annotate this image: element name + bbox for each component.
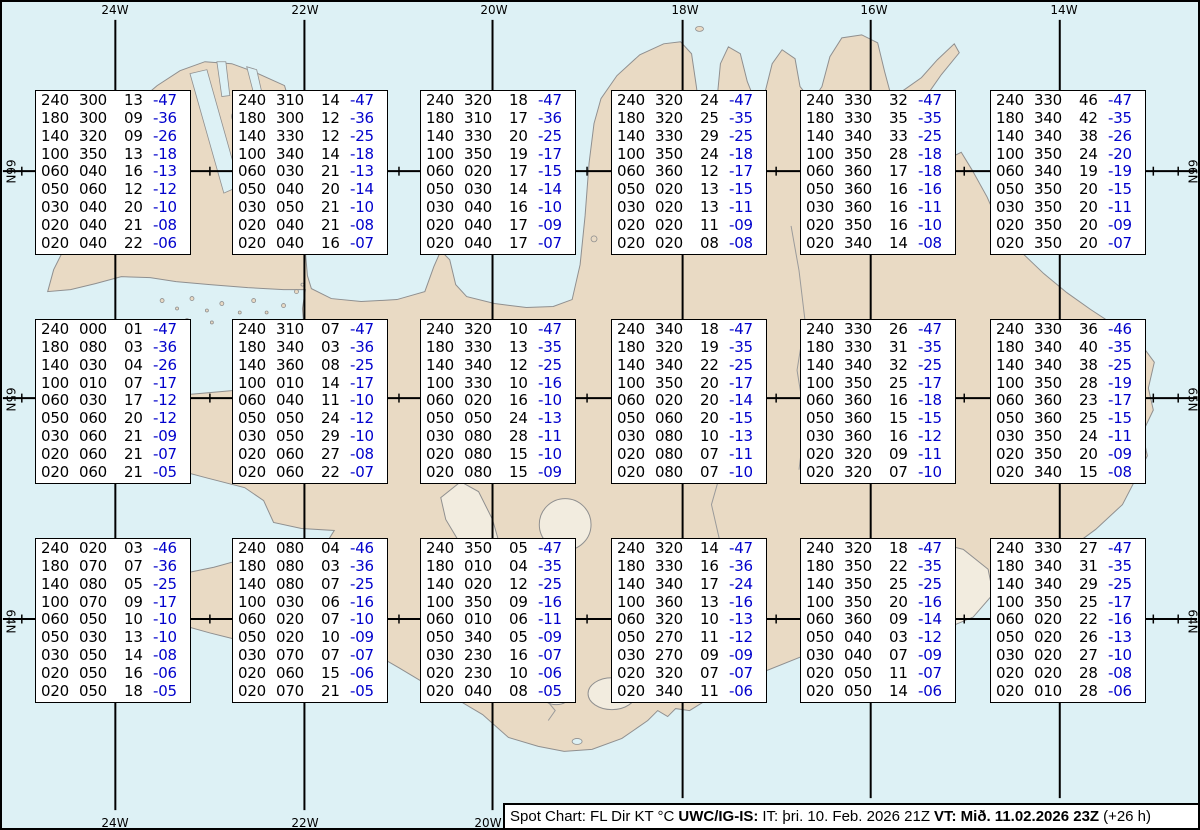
wind-speed-cell: 20 xyxy=(889,594,918,612)
spot-row: 06036009-14 xyxy=(806,611,955,629)
wind-dir-cell: 300 xyxy=(79,110,124,128)
flight-level-cell: 180 xyxy=(996,558,1034,576)
flight-level-cell: 140 xyxy=(41,357,79,375)
flight-level-cell: 140 xyxy=(617,576,655,594)
temperature-cell: -10 xyxy=(918,217,954,235)
wind-dir-cell: 040 xyxy=(276,217,321,235)
wind-dir-cell: 350 xyxy=(1034,375,1079,393)
wind-dir-cell: 330 xyxy=(844,321,889,339)
flight-level-cell: 140 xyxy=(41,576,79,594)
wind-dir-cell: 050 xyxy=(844,665,889,683)
flight-level-cell: 020 xyxy=(806,446,844,464)
flight-level-cell: 050 xyxy=(238,181,276,199)
wind-speed-cell: 10 xyxy=(509,321,538,339)
flight-level-cell: 020 xyxy=(806,217,844,235)
temperature-cell: -05 xyxy=(538,683,574,701)
wind-speed-cell: 24 xyxy=(321,410,350,428)
temperature-cell: -26 xyxy=(153,357,189,375)
spot-row: 05034005-09 xyxy=(426,629,575,647)
flight-level-cell: 100 xyxy=(806,594,844,612)
wind-speed-cell: 36 xyxy=(1079,321,1108,339)
spot-row: 05002010-09 xyxy=(238,629,387,647)
wind-dir-cell: 300 xyxy=(276,110,321,128)
temperature-cell: -10 xyxy=(350,199,386,217)
flight-level-cell: 140 xyxy=(238,357,276,375)
wind-dir-cell: 010 xyxy=(276,375,321,393)
temperature-cell: -18 xyxy=(918,146,954,164)
wind-speed-cell: 10 xyxy=(124,611,153,629)
temperature-cell: -18 xyxy=(350,146,386,164)
wind-speed-cell: 08 xyxy=(509,683,538,701)
wind-dir-cell: 050 xyxy=(276,428,321,446)
spot-data-box: 24035005-4718001004-3514002012-251003500… xyxy=(420,538,576,703)
wind-speed-cell: 10 xyxy=(509,665,538,683)
footer-valid-time: VT: Mið. 11.02.2026 23Z xyxy=(934,808,1099,825)
wind-dir-cell: 340 xyxy=(1034,357,1079,375)
temperature-cell: -09 xyxy=(918,647,954,665)
temperature-cell: -16 xyxy=(538,375,574,393)
flight-level-cell: 020 xyxy=(996,235,1034,253)
flight-level-cell: 020 xyxy=(41,683,79,701)
spot-row: 02006022-07 xyxy=(238,464,387,482)
temperature-cell: -07 xyxy=(350,235,386,253)
wind-dir-cell: 360 xyxy=(655,163,700,181)
temperature-cell: -25 xyxy=(729,128,765,146)
flight-level-cell: 180 xyxy=(806,558,844,576)
wind-dir-cell: 060 xyxy=(276,464,321,482)
wind-speed-cell: 10 xyxy=(509,375,538,393)
temperature-cell: -25 xyxy=(538,576,574,594)
flight-level-cell: 050 xyxy=(238,410,276,428)
spot-row: 03005029-10 xyxy=(238,428,387,446)
flight-level-cell: 050 xyxy=(996,410,1034,428)
temperature-cell: -35 xyxy=(918,558,954,576)
flight-level-cell: 020 xyxy=(996,683,1034,701)
wind-dir-cell: 060 xyxy=(276,446,321,464)
spot-row: 14035025-25 xyxy=(806,576,955,594)
spot-row: 14002012-25 xyxy=(426,576,575,594)
wind-dir-cell: 040 xyxy=(844,647,889,665)
temperature-cell: -36 xyxy=(350,558,386,576)
wind-dir-cell: 050 xyxy=(464,410,509,428)
wind-dir-cell: 320 xyxy=(464,92,509,110)
wind-speed-cell: 21 xyxy=(321,683,350,701)
wind-speed-cell: 04 xyxy=(509,558,538,576)
footer-lead-time: (+26 h) xyxy=(1103,808,1151,825)
temperature-cell: -36 xyxy=(153,558,189,576)
flight-level-cell: 020 xyxy=(617,464,655,482)
spot-row: 18008003-36 xyxy=(41,339,190,357)
flight-level-cell: 240 xyxy=(41,540,79,558)
wind-dir-cell: 050 xyxy=(79,683,124,701)
wind-dir-cell: 360 xyxy=(1034,392,1079,410)
spot-row: 03036016-11 xyxy=(806,199,955,217)
spot-row: 24002003-46 xyxy=(41,540,190,558)
wind-dir-cell: 330 xyxy=(1034,321,1079,339)
temperature-cell: -25 xyxy=(918,576,954,594)
spot-row: 18034042-35 xyxy=(996,110,1145,128)
wind-speed-cell: 03 xyxy=(124,339,153,357)
spot-row: 06002020-14 xyxy=(617,392,766,410)
spot-row: 24032024-47 xyxy=(617,92,766,110)
wind-speed-cell: 13 xyxy=(700,181,729,199)
wind-dir-cell: 350 xyxy=(844,146,889,164)
wind-dir-cell: 060 xyxy=(79,410,124,428)
spot-row: 14034029-25 xyxy=(996,576,1145,594)
spot-row: 02032007-10 xyxy=(806,464,955,482)
temperature-cell: -09 xyxy=(153,428,189,446)
wind-speed-cell: 21 xyxy=(124,428,153,446)
spot-row: 10035020-16 xyxy=(806,594,955,612)
wind-dir-cell: 310 xyxy=(276,321,321,339)
temperature-cell: -26 xyxy=(153,128,189,146)
spot-row: 02006027-08 xyxy=(238,446,387,464)
flight-level-cell: 240 xyxy=(996,540,1034,558)
spot-row: 14033029-25 xyxy=(617,128,766,146)
flight-level-cell: 020 xyxy=(806,235,844,253)
flight-level-cell: 100 xyxy=(617,375,655,393)
flight-level-cell: 020 xyxy=(41,446,79,464)
flight-level-cell: 100 xyxy=(996,375,1034,393)
meridian-label-top: 14W xyxy=(1049,4,1079,17)
spot-row: 18033031-35 xyxy=(806,339,955,357)
spot-row: 03004007-09 xyxy=(806,647,955,665)
temperature-cell: -46 xyxy=(350,540,386,558)
flight-level-cell: 100 xyxy=(41,594,79,612)
wind-dir-cell: 330 xyxy=(464,375,509,393)
wind-dir-cell: 080 xyxy=(276,576,321,594)
wind-dir-cell: 330 xyxy=(464,128,509,146)
wind-speed-cell: 04 xyxy=(321,540,350,558)
wind-dir-cell: 340 xyxy=(1034,163,1079,181)
spot-row: 02034014-08 xyxy=(806,235,955,253)
spot-row: 02004022-06 xyxy=(41,235,190,253)
spot-row: 02007021-05 xyxy=(238,683,387,701)
flight-level-cell: 240 xyxy=(996,321,1034,339)
temperature-cell: -17 xyxy=(918,375,954,393)
spot-row: 06036016-18 xyxy=(806,392,955,410)
spot-row: 10035024-18 xyxy=(617,146,766,164)
wind-dir-cell: 320 xyxy=(464,321,509,339)
spot-row: 18030009-36 xyxy=(41,110,190,128)
flight-level-cell: 020 xyxy=(617,217,655,235)
flight-level-cell: 140 xyxy=(996,128,1034,146)
spot-row: 02008015-10 xyxy=(426,446,575,464)
spot-row: 10001014-17 xyxy=(238,375,387,393)
temperature-cell: -11 xyxy=(918,199,954,217)
wind-speed-cell: 08 xyxy=(321,357,350,375)
flight-level-cell: 180 xyxy=(426,339,464,357)
flight-level-cell: 060 xyxy=(617,611,655,629)
spot-row: 24008004-46 xyxy=(238,540,387,558)
spot-row: 10035020-17 xyxy=(617,375,766,393)
wind-dir-cell: 330 xyxy=(655,128,700,146)
wind-speed-cell: 17 xyxy=(509,217,538,235)
wind-dir-cell: 020 xyxy=(1034,647,1079,665)
temperature-cell: -05 xyxy=(153,464,189,482)
wind-speed-cell: 17 xyxy=(889,163,918,181)
spot-row: 24032014-47 xyxy=(617,540,766,558)
wind-speed-cell: 06 xyxy=(321,594,350,612)
flight-level-cell: 100 xyxy=(617,594,655,612)
flight-level-cell: 100 xyxy=(238,146,276,164)
temperature-cell: -10 xyxy=(538,199,574,217)
flight-level-cell: 100 xyxy=(426,375,464,393)
wind-speed-cell: 04 xyxy=(124,357,153,375)
wind-dir-cell: 030 xyxy=(79,392,124,410)
wind-dir-cell: 360 xyxy=(844,410,889,428)
spot-row: 14034032-25 xyxy=(806,357,955,375)
spot-row: 02032009-11 xyxy=(806,446,955,464)
temperature-cell: -16 xyxy=(1108,611,1144,629)
wind-speed-cell: 16 xyxy=(889,199,918,217)
parallel-label-left: 66N xyxy=(4,157,17,187)
wind-speed-cell: 12 xyxy=(321,110,350,128)
spot-data-box: 24031007-4718034003-3614036008-251000101… xyxy=(232,319,388,484)
wind-speed-cell: 27 xyxy=(321,446,350,464)
flight-level-cell: 060 xyxy=(426,163,464,181)
meridian-label-top: 16W xyxy=(859,4,889,17)
flight-level-cell: 100 xyxy=(426,594,464,612)
wind-speed-cell: 21 xyxy=(124,446,153,464)
flight-level-cell: 240 xyxy=(41,92,79,110)
wind-speed-cell: 09 xyxy=(124,110,153,128)
wind-speed-cell: 17 xyxy=(509,110,538,128)
wind-speed-cell: 07 xyxy=(321,611,350,629)
flight-level-cell: 020 xyxy=(617,446,655,464)
wind-dir-cell: 360 xyxy=(844,199,889,217)
temperature-cell: -10 xyxy=(729,464,765,482)
wind-speed-cell: 35 xyxy=(889,110,918,128)
wind-speed-cell: 28 xyxy=(1079,683,1108,701)
flight-level-cell: 240 xyxy=(806,540,844,558)
wind-dir-cell: 080 xyxy=(79,576,124,594)
spot-data-box: 24008004-4618008003-3614008007-251000300… xyxy=(232,538,388,703)
wind-dir-cell: 020 xyxy=(1034,629,1079,647)
temperature-cell: -08 xyxy=(350,217,386,235)
wind-speed-cell: 16 xyxy=(700,558,729,576)
spot-data-box: 24000001-4718008003-3614003004-261000100… xyxy=(35,319,191,484)
temperature-cell: -15 xyxy=(1108,410,1144,428)
wind-dir-cell: 230 xyxy=(464,647,509,665)
temperature-cell: -36 xyxy=(350,339,386,357)
wind-speed-cell: 25 xyxy=(700,110,729,128)
wind-speed-cell: 17 xyxy=(509,235,538,253)
wind-speed-cell: 22 xyxy=(321,464,350,482)
wind-speed-cell: 16 xyxy=(509,647,538,665)
flight-level-cell: 050 xyxy=(426,410,464,428)
spot-row: 24032010-47 xyxy=(426,321,575,339)
wind-dir-cell: 020 xyxy=(276,611,321,629)
flight-level-cell: 050 xyxy=(41,181,79,199)
spot-row: 06002017-15 xyxy=(426,163,575,181)
spot-data-box: 24031014-4718030012-3614033012-251003401… xyxy=(232,90,388,255)
wind-speed-cell: 19 xyxy=(509,146,538,164)
spot-row: 05036016-16 xyxy=(806,181,955,199)
wind-speed-cell: 19 xyxy=(1079,163,1108,181)
wind-dir-cell: 360 xyxy=(844,392,889,410)
temperature-cell: -19 xyxy=(1108,375,1144,393)
spot-row: 02004017-07 xyxy=(426,235,575,253)
wind-speed-cell: 24 xyxy=(1079,428,1108,446)
flight-level-cell: 180 xyxy=(238,558,276,576)
flight-level-cell: 240 xyxy=(806,92,844,110)
spot-row: 06002022-16 xyxy=(996,611,1145,629)
wind-dir-cell: 340 xyxy=(464,357,509,375)
wind-speed-cell: 20 xyxy=(1079,181,1108,199)
temperature-cell: -47 xyxy=(153,321,189,339)
temperature-cell: -25 xyxy=(153,576,189,594)
temperature-cell: -09 xyxy=(1108,446,1144,464)
flight-level-cell: 180 xyxy=(996,339,1034,357)
temperature-cell: -12 xyxy=(153,181,189,199)
spot-row: 02004016-07 xyxy=(238,235,387,253)
wind-dir-cell: 000 xyxy=(79,321,124,339)
wind-speed-cell: 15 xyxy=(889,410,918,428)
flight-level-cell: 140 xyxy=(426,357,464,375)
wind-speed-cell: 20 xyxy=(1079,217,1108,235)
flight-level-cell: 020 xyxy=(238,464,276,482)
flight-level-cell: 140 xyxy=(806,128,844,146)
temperature-cell: -17 xyxy=(153,594,189,612)
flight-level-cell: 020 xyxy=(238,683,276,701)
wind-speed-cell: 03 xyxy=(321,339,350,357)
spot-row: 06036023-17 xyxy=(996,392,1145,410)
temperature-cell: -13 xyxy=(729,611,765,629)
temperature-cell: -36 xyxy=(350,110,386,128)
wind-dir-cell: 060 xyxy=(655,410,700,428)
wind-speed-cell: 09 xyxy=(124,594,153,612)
wind-speed-cell: 18 xyxy=(889,540,918,558)
spot-row: 02035020-09 xyxy=(996,217,1145,235)
wind-speed-cell: 14 xyxy=(321,92,350,110)
spot-data-box: 24033026-4718033031-3514034032-251003502… xyxy=(800,319,956,484)
meridian-label-top: 22W xyxy=(290,4,320,17)
flight-level-cell: 050 xyxy=(806,181,844,199)
wind-speed-cell: 20 xyxy=(1079,199,1108,217)
temperature-cell: -11 xyxy=(918,446,954,464)
wind-dir-cell: 320 xyxy=(655,92,700,110)
spot-row: 18001004-35 xyxy=(426,558,575,576)
spot-row: 18034003-36 xyxy=(238,339,387,357)
flight-level-cell: 100 xyxy=(41,375,79,393)
spot-row: 18030012-36 xyxy=(238,110,387,128)
wind-dir-cell: 330 xyxy=(1034,540,1079,558)
flight-level-cell: 020 xyxy=(426,464,464,482)
wind-dir-cell: 340 xyxy=(844,128,889,146)
spot-row: 02034011-06 xyxy=(617,683,766,701)
wind-dir-cell: 040 xyxy=(464,199,509,217)
wind-dir-cell: 350 xyxy=(655,146,700,164)
wind-speed-cell: 21 xyxy=(321,163,350,181)
spot-row: 02004008-05 xyxy=(426,683,575,701)
temperature-cell: -09 xyxy=(729,217,765,235)
flight-level-cell: 240 xyxy=(426,540,464,558)
flight-level-cell: 240 xyxy=(426,321,464,339)
meridian-label-bottom: 24W xyxy=(100,817,130,830)
wind-dir-cell: 320 xyxy=(655,665,700,683)
wind-dir-cell: 360 xyxy=(1034,410,1079,428)
spot-row: 18033016-36 xyxy=(617,558,766,576)
wind-dir-cell: 350 xyxy=(1034,235,1079,253)
flight-level-cell: 020 xyxy=(238,217,276,235)
wind-speed-cell: 20 xyxy=(124,410,153,428)
temperature-cell: -18 xyxy=(729,146,765,164)
temperature-cell: -15 xyxy=(1108,181,1144,199)
temperature-cell: -06 xyxy=(350,665,386,683)
temperature-cell: -07 xyxy=(153,446,189,464)
wind-dir-cell: 360 xyxy=(844,181,889,199)
spot-row: 02002011-09 xyxy=(617,217,766,235)
temperature-cell: -17 xyxy=(1108,392,1144,410)
wind-dir-cell: 340 xyxy=(655,321,700,339)
temperature-cell: -12 xyxy=(350,410,386,428)
spot-row: 05002026-13 xyxy=(996,629,1145,647)
wind-speed-cell: 14 xyxy=(321,146,350,164)
spot-row: 06005010-10 xyxy=(41,611,190,629)
wind-dir-cell: 040 xyxy=(79,199,124,217)
flight-level-cell: 060 xyxy=(806,611,844,629)
temperature-cell: -10 xyxy=(153,611,189,629)
spot-row: 02001028-06 xyxy=(996,683,1145,701)
flight-level-cell: 030 xyxy=(617,647,655,665)
spot-row: 02035016-10 xyxy=(806,217,955,235)
temperature-cell: -13 xyxy=(1108,629,1144,647)
spot-row: 10035025-17 xyxy=(806,375,955,393)
temperature-cell: -16 xyxy=(538,594,574,612)
spot-row: 24030013-47 xyxy=(41,92,190,110)
wind-dir-cell: 330 xyxy=(464,339,509,357)
flight-level-cell: 140 xyxy=(426,576,464,594)
spot-row: 14008005-25 xyxy=(41,576,190,594)
flight-level-cell: 050 xyxy=(806,410,844,428)
wind-dir-cell: 340 xyxy=(844,235,889,253)
wind-dir-cell: 330 xyxy=(276,128,321,146)
temperature-cell: -09 xyxy=(538,464,574,482)
temperature-cell: -46 xyxy=(153,540,189,558)
wind-speed-cell: 16 xyxy=(509,392,538,410)
wind-speed-cell: 12 xyxy=(124,181,153,199)
temperature-cell: -36 xyxy=(153,339,189,357)
wind-dir-cell: 060 xyxy=(276,665,321,683)
temperature-cell: -10 xyxy=(538,392,574,410)
spot-row: 14034038-26 xyxy=(996,128,1145,146)
flight-level-cell: 240 xyxy=(617,321,655,339)
wind-speed-cell: 05 xyxy=(509,629,538,647)
wind-dir-cell: 020 xyxy=(655,181,700,199)
spot-row: 02005011-07 xyxy=(806,665,955,683)
flight-level-cell: 030 xyxy=(238,199,276,217)
spot-data-box: 24033027-4718034031-3514034029-251003502… xyxy=(990,538,1146,703)
flight-level-cell: 240 xyxy=(238,92,276,110)
temperature-cell: -08 xyxy=(350,446,386,464)
flight-level-cell: 020 xyxy=(426,217,464,235)
flight-level-cell: 020 xyxy=(996,665,1034,683)
flight-level-cell: 180 xyxy=(806,110,844,128)
spot-row: 02032007-07 xyxy=(617,665,766,683)
spot-data-box: 24034018-4718032019-3514034022-251003502… xyxy=(611,319,767,484)
spot-row: 24035005-47 xyxy=(426,540,575,558)
wind-speed-cell: 12 xyxy=(321,128,350,146)
wind-dir-cell: 340 xyxy=(1034,576,1079,594)
temperature-cell: -17 xyxy=(1108,594,1144,612)
spot-row: 18035022-35 xyxy=(806,558,955,576)
wind-dir-cell: 020 xyxy=(464,392,509,410)
wind-speed-cell: 12 xyxy=(509,576,538,594)
wind-dir-cell: 350 xyxy=(655,375,700,393)
temperature-cell: -35 xyxy=(729,339,765,357)
flight-level-cell: 030 xyxy=(426,428,464,446)
